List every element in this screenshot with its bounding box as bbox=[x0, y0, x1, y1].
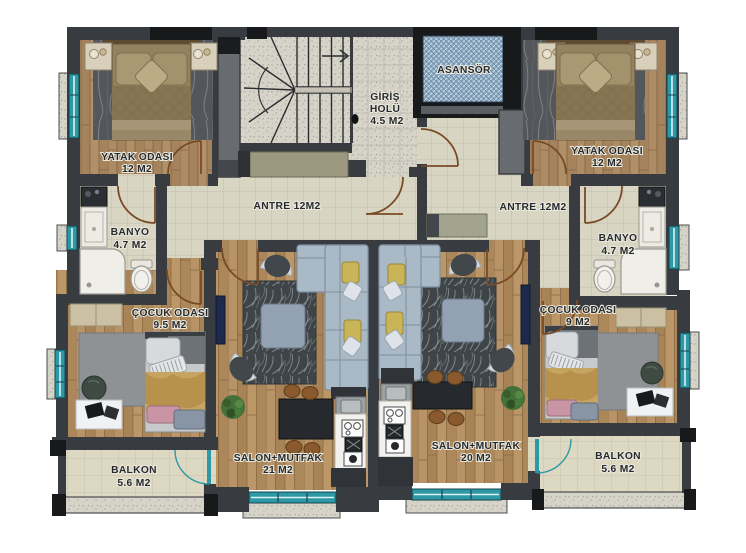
svg-text:ÇOCUK ODASI: ÇOCUK ODASI bbox=[132, 308, 209, 319]
svg-text:5.6 M2: 5.6 M2 bbox=[601, 464, 634, 475]
svg-text:21 M2: 21 M2 bbox=[263, 465, 293, 476]
svg-text:5.6 M2: 5.6 M2 bbox=[117, 478, 150, 489]
svg-text:GİRİŞ: GİRİŞ bbox=[370, 90, 400, 103]
svg-text:4.5 M2: 4.5 M2 bbox=[370, 116, 403, 127]
svg-text:ÇOCUK ODASI: ÇOCUK ODASI bbox=[540, 305, 617, 316]
svg-text:ANTRE 12M2: ANTRE 12M2 bbox=[499, 202, 566, 213]
svg-text:HOLÜ: HOLÜ bbox=[370, 102, 400, 115]
svg-text:BALKON: BALKON bbox=[111, 465, 157, 476]
svg-text:YATAK ODASI: YATAK ODASI bbox=[571, 146, 643, 157]
svg-text:BALKON: BALKON bbox=[595, 451, 641, 462]
svg-text:4.7 M2: 4.7 M2 bbox=[113, 240, 146, 251]
svg-text:9 M2: 9 M2 bbox=[566, 317, 590, 328]
svg-text:ANTRE 12M2: ANTRE 12M2 bbox=[253, 201, 320, 212]
svg-text:SALON+MUTFAK: SALON+MUTFAK bbox=[432, 441, 521, 452]
svg-text:12 M2: 12 M2 bbox=[592, 158, 622, 169]
svg-text:YATAK ODASI: YATAK ODASI bbox=[101, 152, 173, 163]
svg-text:BANYO: BANYO bbox=[111, 227, 150, 238]
svg-text:20 M2: 20 M2 bbox=[461, 453, 491, 464]
svg-text:BANYO: BANYO bbox=[599, 233, 638, 244]
svg-text:4.7 M2: 4.7 M2 bbox=[601, 246, 634, 257]
svg-text:ASANSÖR: ASANSÖR bbox=[437, 63, 491, 76]
svg-text:SALON+MUTFAK: SALON+MUTFAK bbox=[234, 453, 323, 464]
svg-text:9.5 M2: 9.5 M2 bbox=[153, 320, 186, 331]
svg-text:12 M2: 12 M2 bbox=[122, 164, 152, 175]
